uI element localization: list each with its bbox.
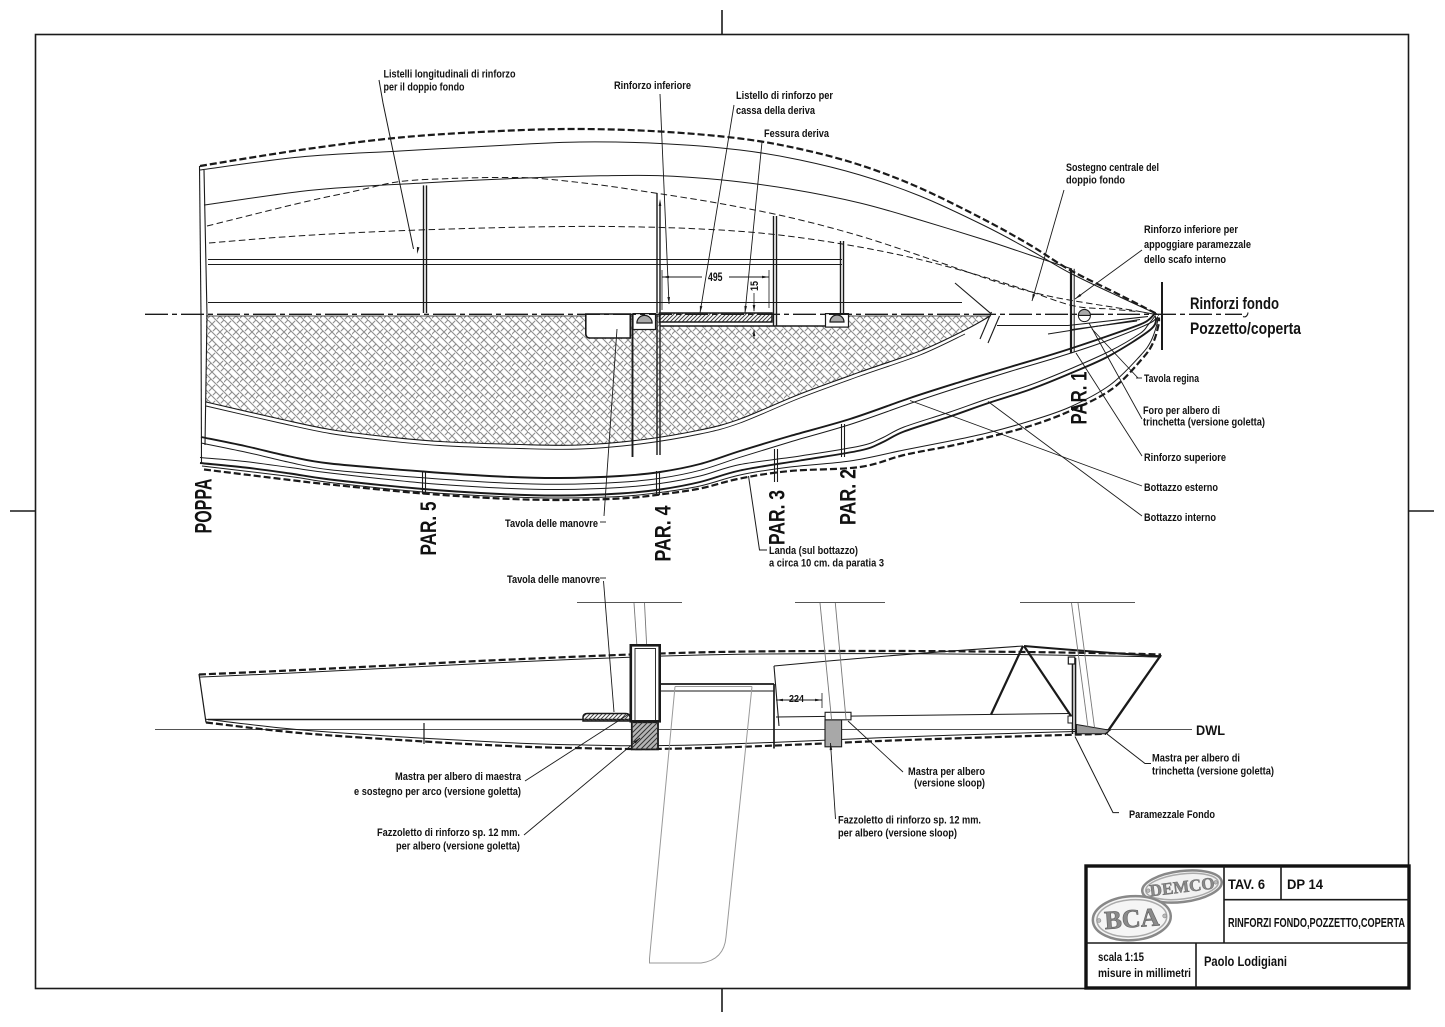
svg-text:Mastra per albero di maestra: Mastra per albero di maestra [395,771,522,783]
svg-text:PAR. 1: PAR. 1 [1067,372,1092,425]
svg-text:appoggiare paramezzale: appoggiare paramezzale [1144,239,1251,251]
svg-text:cassa della deriva: cassa della deriva [736,105,816,117]
svg-text:doppio fondo: doppio fondo [1066,175,1125,187]
svg-text:Paolo Lodigiani: Paolo Lodigiani [1204,954,1287,969]
svg-text:Fazzoletto di rinforzo sp. 12: Fazzoletto di rinforzo sp. 12 mm. [838,815,981,827]
svg-text:Foro per albero di: Foro per albero di [1143,405,1220,417]
svg-text:trinchetta (versione goletta): trinchetta (versione goletta) [1152,765,1274,777]
svg-text:Rinforzo inferiore: Rinforzo inferiore [614,80,691,92]
svg-text:Listelli longitudinali di rinf: Listelli longitudinali di rinforzo [384,69,516,81]
svg-text:224: 224 [789,693,804,705]
svg-text:PAR. 3: PAR. 3 [765,490,790,545]
svg-text:Rinforzi fondo: Rinforzi fondo [1190,294,1279,313]
svg-text:Mastra per albero: Mastra per albero [908,766,985,778]
svg-text:per albero (versione sloop): per albero (versione sloop) [838,827,957,839]
svg-text:TAV. 6: TAV. 6 [1228,877,1265,892]
svg-text:(versione sloop): (versione sloop) [914,778,985,790]
svg-text:POPPA: POPPA [191,479,218,534]
svg-text:e sostegno per arco (versione: e sostegno per arco (versione goletta) [354,786,521,798]
svg-text:DWL: DWL [1196,723,1225,738]
svg-text:Pozzetto/coperta: Pozzetto/coperta [1190,319,1301,338]
svg-text:Paramezzale Fondo: Paramezzale Fondo [1129,809,1215,821]
svg-text:scala 1:15: scala 1:15 [1098,950,1144,964]
svg-text:Tavola delle manovre: Tavola delle manovre [505,518,598,530]
svg-text:a circa 10 cm. da paratia 3: a circa 10 cm. da paratia 3 [769,558,884,570]
svg-text:Bottazzo esterno: Bottazzo esterno [1144,482,1218,494]
svg-text:15: 15 [749,281,761,291]
svg-text:Sostegno centrale del: Sostegno centrale del [1066,162,1159,174]
svg-text:495: 495 [708,270,723,284]
svg-text:Rinforzo inferiore per: Rinforzo inferiore per [1144,224,1239,236]
svg-text:Tavola delle manovre: Tavola delle manovre [507,574,600,586]
svg-text:Listello di rinforzo per: Listello di rinforzo per [736,90,834,102]
svg-text:Fazzoletto di rinforzo sp. 12: Fazzoletto di rinforzo sp. 12 mm. [377,827,520,839]
svg-text:DP 14: DP 14 [1287,877,1323,892]
svg-text:Mastra per albero di: Mastra per albero di [1152,753,1240,765]
svg-text:Landa (sul bottazzo): Landa (sul bottazzo) [769,545,858,557]
svg-text:per albero (versione goletta): per albero (versione goletta) [396,841,520,853]
svg-text:Tavola regina: Tavola regina [1144,373,1200,385]
svg-text:trinchetta (versione goletta): trinchetta (versione goletta) [1143,417,1265,429]
svg-text:RINFORZI FONDO,POZZETTO,COPERT: RINFORZI FONDO,POZZETTO,COPERTA [1228,915,1405,930]
svg-text:PAR. 4: PAR. 4 [651,505,676,562]
svg-text:PAR. 5: PAR. 5 [416,502,441,556]
svg-text:BCA: BCA [1103,902,1160,935]
svg-text:dello scafo interno: dello scafo interno [1144,254,1226,266]
svg-text:Bottazzo interno: Bottazzo interno [1144,512,1216,524]
svg-text:PAR. 2: PAR. 2 [836,469,861,525]
svg-text:Rinforzo superiore: Rinforzo superiore [1144,452,1226,464]
svg-text:misure in millimetri: misure in millimetri [1098,966,1191,980]
svg-text:per il doppio fondo: per il doppio fondo [384,82,465,94]
svg-text:Fessura deriva: Fessura deriva [764,128,830,140]
